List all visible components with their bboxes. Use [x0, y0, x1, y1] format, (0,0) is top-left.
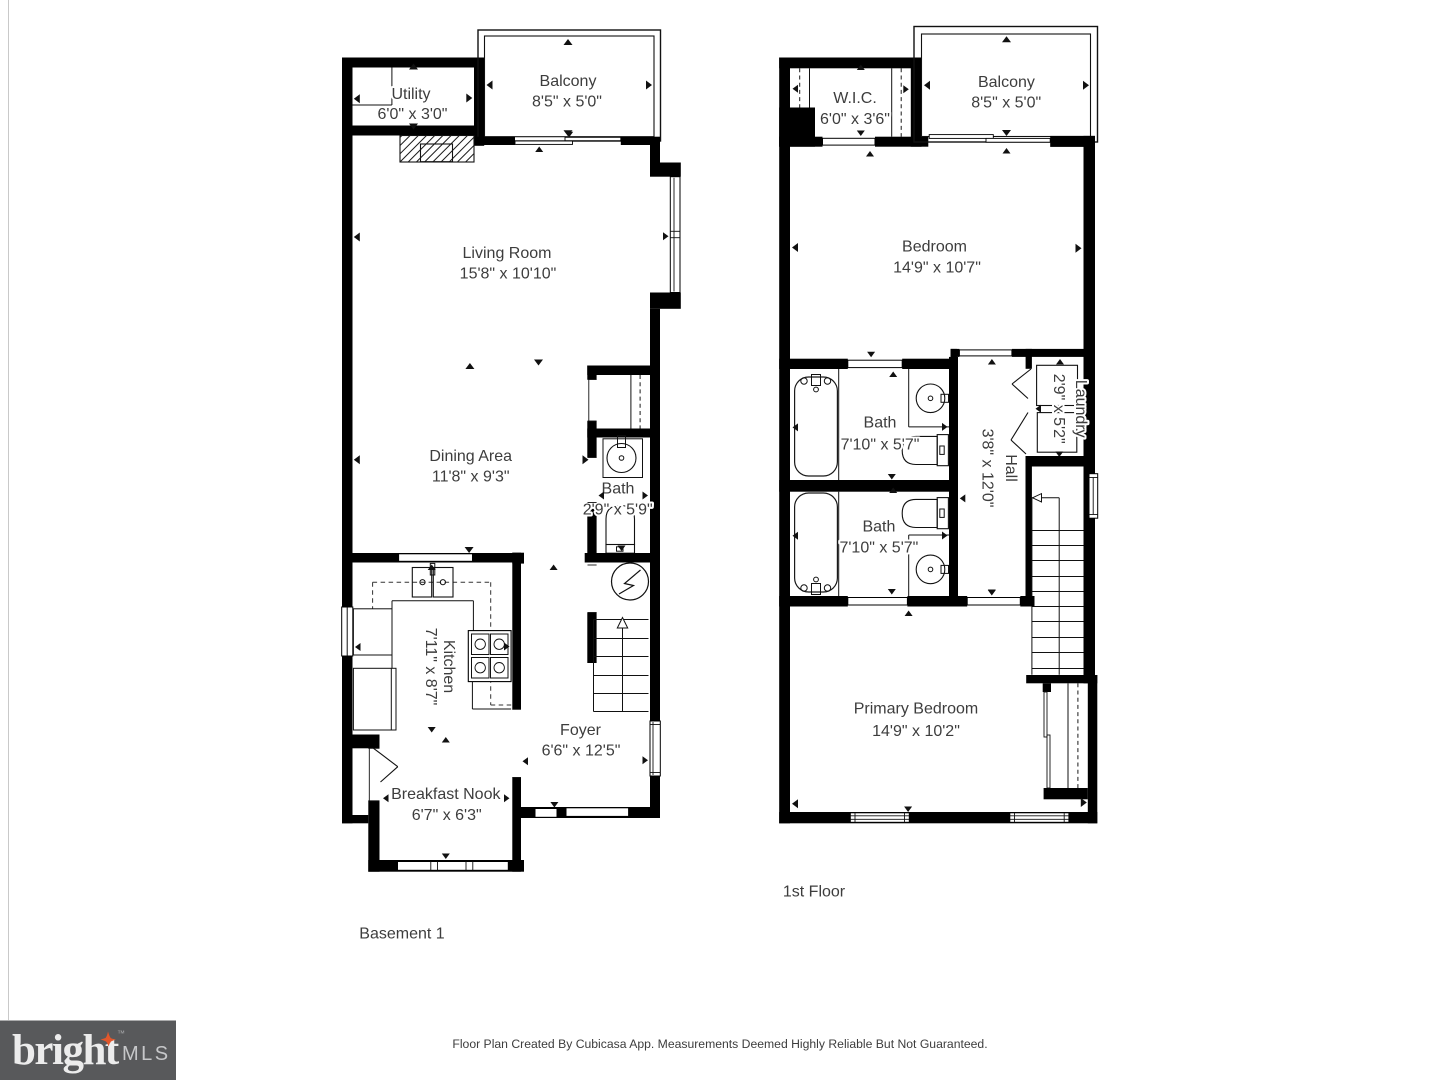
svg-text:™: ™ [117, 1029, 125, 1038]
svg-text:14'9" x 10'7": 14'9" x 10'7" [893, 260, 981, 277]
svg-text:8'5" x 5'0": 8'5" x 5'0" [971, 95, 1041, 112]
svg-text:Bath: Bath [862, 519, 895, 536]
svg-text:Utility: Utility [391, 86, 430, 103]
svg-text:6'0" x 3'6": 6'0" x 3'6" [820, 111, 890, 128]
svg-text:Balcony: Balcony [540, 73, 597, 90]
svg-text:2'9" x 5'9": 2'9" x 5'9" [583, 502, 653, 519]
svg-text:Bedroom: Bedroom [902, 239, 967, 256]
svg-text:Primary Bedroom: Primary Bedroom [854, 701, 978, 718]
svg-text:1st Floor: 1st Floor [783, 884, 846, 901]
svg-text:6'7" x 6'3": 6'7" x 6'3" [412, 807, 482, 824]
svg-text:bright: bright [12, 1027, 120, 1074]
svg-text:Dining Area: Dining Area [429, 448, 512, 465]
svg-text:Floor Plan Created By Cubicasa: Floor Plan Created By Cubicasa App. Meas… [452, 1037, 987, 1051]
svg-text:Foyer: Foyer [560, 722, 602, 739]
svg-text:7'10" x 5'7": 7'10" x 5'7" [841, 437, 920, 454]
svg-text:MLS: MLS [122, 1043, 171, 1065]
svg-text:Breakfast Nook: Breakfast Nook [391, 786, 501, 803]
svg-text:6'0" x 3'0": 6'0" x 3'0" [378, 106, 448, 123]
svg-text:6'6" x 12'5": 6'6" x 12'5" [542, 743, 621, 760]
svg-text:Living Room: Living Room [463, 245, 552, 262]
svg-text:Basement 1: Basement 1 [359, 926, 444, 943]
svg-text:W.I.C.: W.I.C. [833, 90, 877, 107]
svg-text:Balcony: Balcony [978, 74, 1035, 91]
svg-text:Bath: Bath [602, 481, 635, 498]
svg-text:11'8" x 9'3": 11'8" x 9'3" [432, 469, 510, 486]
svg-text:7'10" x 5'7": 7'10" x 5'7" [839, 540, 918, 557]
svg-text:8'5" x 5'0": 8'5" x 5'0" [532, 94, 602, 111]
svg-text:15'8" x 10'10": 15'8" x 10'10" [460, 266, 557, 283]
svg-text:14'9" x 10'2": 14'9" x 10'2" [872, 723, 960, 740]
svg-text:Bath: Bath [864, 415, 897, 432]
